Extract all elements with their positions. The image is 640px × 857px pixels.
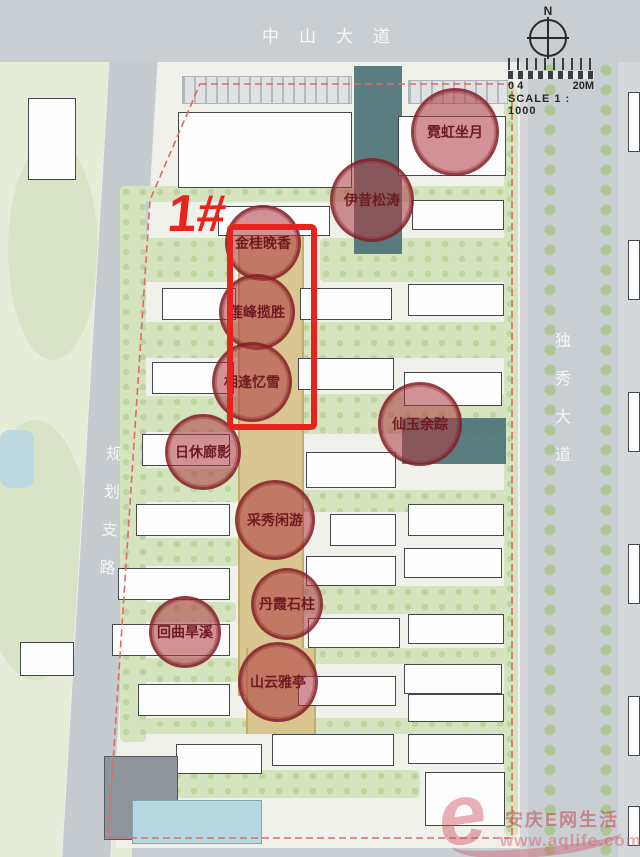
building-footprint (306, 452, 396, 488)
scenic-node-label: 霓虹坐月 (427, 122, 483, 142)
scenic-node-label: 伊昔松涛 (344, 190, 400, 210)
building-footprint (306, 556, 396, 586)
building-footprint (404, 548, 502, 578)
building-footprint (628, 240, 640, 300)
building-footprint (628, 392, 640, 452)
building-footprint (408, 694, 504, 722)
north-label: N (544, 4, 553, 18)
scenic-node-label: 山云雅亭 (250, 672, 306, 692)
parking-strip (182, 76, 352, 104)
watermark-site-name: 安庆E网生活 (505, 806, 619, 832)
highlight-label-1: 1# (165, 188, 228, 240)
building-footprint (136, 504, 230, 536)
building-footprint (408, 734, 504, 764)
building-footprint (330, 514, 396, 546)
building-footprint (178, 112, 352, 188)
scenic-node-label: 日休廊影 (175, 442, 231, 462)
scale-bar: 0 4 20M SCALE 1 : 1000 (508, 58, 594, 117)
site-plan-canvas: 规划支路 中山大道 独秀大道 霓虹坐月伊昔松涛金桂晚香莲峰揽胜相逢忆雪仙玉余踪日… (0, 0, 640, 857)
building-footprint (138, 684, 230, 716)
compass-dial-icon (529, 19, 567, 57)
scenic-node: 伊昔松涛 (330, 158, 414, 242)
building-footprint (20, 642, 74, 676)
scenic-node-label: 丹霞石柱 (259, 594, 315, 614)
scenic-node: 霓虹坐月 (411, 88, 499, 176)
green-patch (300, 648, 516, 664)
building-footprint (132, 800, 262, 844)
building-footprint (408, 284, 504, 316)
green-patch (300, 322, 516, 358)
scale-left-value: 0 4 (508, 80, 523, 92)
scenic-node: 丹霞石柱 (251, 568, 323, 640)
map-layers: 霓虹坐月伊昔松涛金桂晚香莲峰揽胜相逢忆雪仙玉余踪日休廊影采秀闲游丹霞石柱回曲旱溪… (0, 0, 640, 857)
scenic-node: 山云雅亭 (238, 642, 318, 722)
building-footprint (628, 92, 640, 152)
building-footprint (118, 568, 230, 600)
building-footprint (176, 744, 262, 774)
highlight-rectangle-1 (227, 224, 317, 430)
building-footprint (404, 664, 502, 694)
building-footprint (412, 200, 504, 230)
building-footprint (408, 504, 504, 536)
scenic-node: 回曲旱溪 (149, 596, 221, 668)
scale-ratio-label: SCALE 1 : 1000 (508, 93, 594, 117)
scale-comb-icon (508, 71, 594, 79)
building-footprint (308, 618, 400, 648)
scale-right-value: 20M (573, 80, 594, 92)
scenic-node-label: 回曲旱溪 (157, 622, 213, 642)
building-footprint (628, 696, 640, 756)
green-patch (300, 586, 516, 614)
building-footprint (628, 544, 640, 604)
scenic-node-label: 采秀闲游 (247, 510, 303, 530)
scenic-node: 仙玉余踪 (378, 382, 462, 466)
building-footprint (28, 98, 76, 180)
green-patch (504, 88, 518, 836)
scenic-node-label: 仙玉余踪 (392, 414, 448, 434)
building-footprint (272, 734, 394, 766)
scale-ticks-icon (508, 58, 594, 70)
building-footprint (408, 614, 504, 644)
scenic-node: 采秀闲游 (235, 480, 315, 560)
green-patch (320, 238, 516, 282)
watermark-url: www.aqlife.com (500, 831, 640, 851)
